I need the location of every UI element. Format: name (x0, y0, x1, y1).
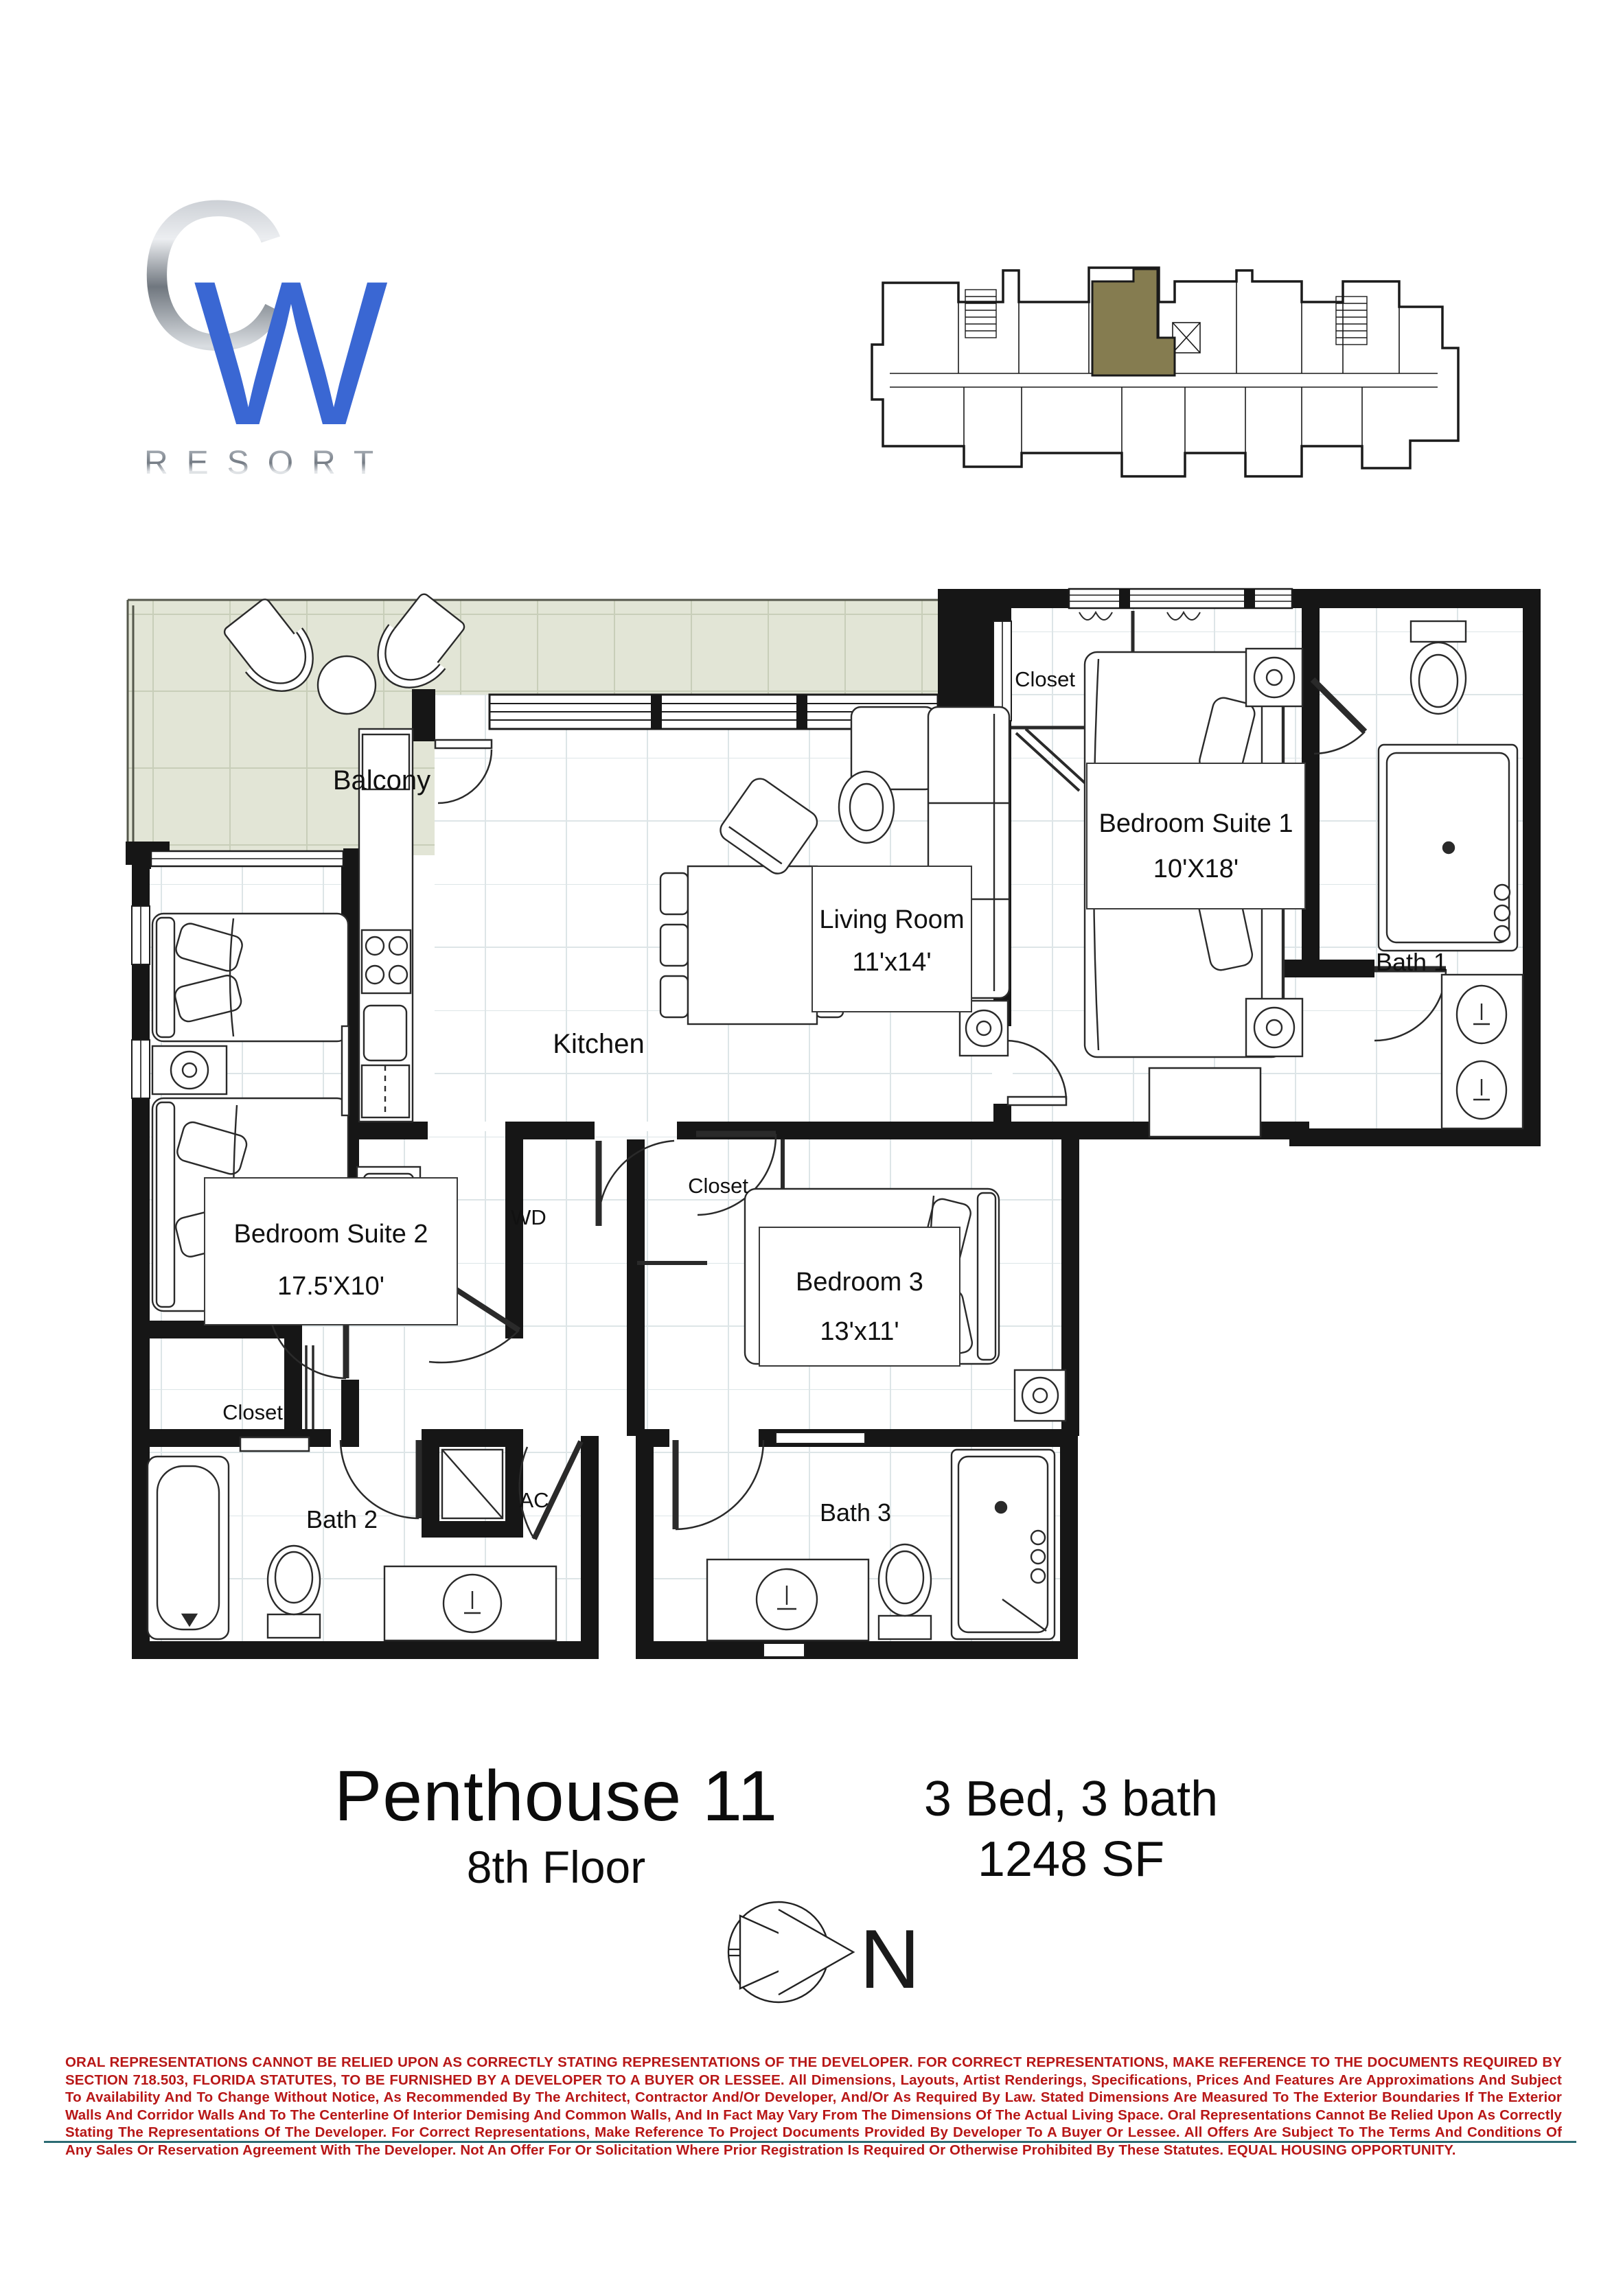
label-suite1-dims: 10'X18' (1153, 855, 1239, 883)
building-key-plan (872, 268, 1458, 476)
label-closet-suite1: Closet (1015, 667, 1075, 691)
stairwell-hatch-icon (965, 290, 1367, 345)
nightstand-icon (152, 1046, 227, 1094)
nightstand-icon (1246, 999, 1302, 1056)
bath2-tub-icon (148, 1457, 229, 1639)
label-bed3-dims: 13'x11' (820, 1317, 899, 1346)
label-bath2: Bath 2 (306, 1505, 378, 1533)
logo-letter-w: W (194, 237, 390, 468)
label-bath1: Bath 1 (1376, 948, 1447, 976)
balcony-table-icon (318, 656, 376, 714)
bath3-shower-icon (952, 1450, 1055, 1639)
suite1-west-window (993, 621, 1011, 721)
label-suite2-dims: 17.5'X10' (277, 1272, 384, 1301)
bath1-vanity-icon (1442, 975, 1523, 1128)
elevator-icon (1173, 323, 1200, 353)
unit-floor-plan: Balcony Living Room 11'x14' Kitchen Bedr… (126, 588, 1541, 1659)
label-suite1: Bedroom Suite 1 (1098, 809, 1293, 838)
label-bath3: Bath 3 (820, 1498, 891, 1527)
unit-config: 3 Bed, 3 bath (831, 1771, 1311, 1827)
suite2-dresser-icon (342, 1026, 349, 1115)
suite2-bed-icon (152, 914, 348, 1041)
label-closet-bed3: Closet (688, 1174, 748, 1198)
legal-disclaimer: ORAL REPRESENTATIONS CANNOT BE RELIED UP… (65, 2054, 1562, 2159)
label-closet-suite2: Closet (222, 1400, 283, 1424)
flyer-artwork: C W RESORT (0, 0, 1623, 2296)
highlighted-unit-shape (1092, 269, 1175, 375)
ac-unit-icon (442, 1450, 503, 1518)
label-ac: AC (519, 1488, 549, 1512)
label-balcony: Balcony (333, 765, 430, 796)
bath2-vanity-icon (384, 1566, 556, 1640)
unit-floor: 8th Floor (295, 1841, 817, 1893)
bath1-shower-icon (1379, 745, 1517, 951)
label-living-room-dims: 11'x14' (852, 948, 931, 977)
bath3-vanity-icon (707, 1559, 868, 1640)
floorplan-flyer-page: C W RESORT (0, 0, 1623, 2296)
north-compass: N (728, 1902, 920, 2006)
label-living-room: Living Room (819, 905, 964, 934)
label-wd: WD (511, 1205, 546, 1229)
nightstand-icon (1015, 1370, 1066, 1421)
bath3-shelf-niche (776, 1433, 865, 1443)
resort-logo: C W RESORT (136, 156, 392, 481)
unit-title: Penthouse 11 (295, 1756, 817, 1837)
logo-word-resort: RESORT (144, 445, 392, 481)
bath3-toilet-icon (879, 1544, 931, 1639)
label-kitchen: Kitchen (553, 1029, 644, 1059)
nightstand-icon (1246, 649, 1302, 706)
suite2-balcony-window (151, 851, 343, 866)
label-bed3: Bedroom 3 (796, 1268, 923, 1297)
bath1-toilet-icon (1411, 621, 1466, 714)
label-suite2: Bedroom Suite 2 (233, 1220, 428, 1249)
bottom-rule (44, 2141, 1576, 2143)
bath3-window (763, 1643, 805, 1657)
bath2-toilet-icon (268, 1546, 320, 1638)
unit-area: 1248 SF (831, 1831, 1311, 1888)
ottoman-icon (839, 772, 894, 843)
north-label: N (860, 1912, 920, 2006)
